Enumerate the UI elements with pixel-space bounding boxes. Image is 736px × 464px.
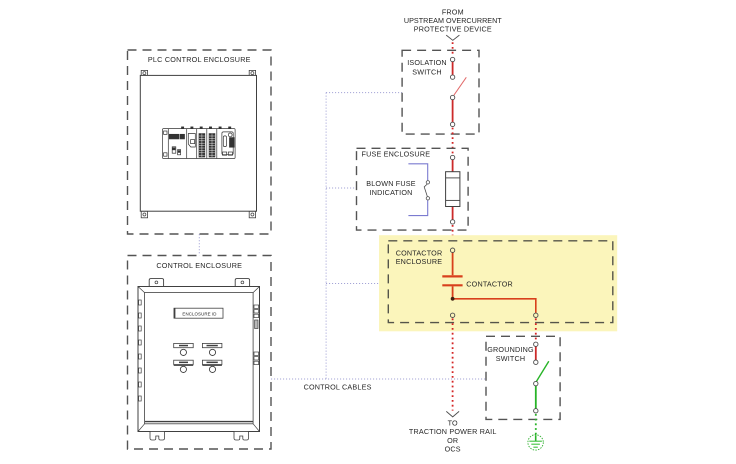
svg-text:CONTROL CABLES: CONTROL CABLES: [304, 382, 372, 391]
svg-text:BLOWN FUSE: BLOWN FUSE: [366, 179, 416, 188]
svg-text:TO: TO: [448, 418, 458, 427]
svg-text:PROTECTIVE DEVICE: PROTECTIVE DEVICE: [414, 25, 492, 34]
svg-text:SWITCH: SWITCH: [496, 354, 526, 363]
svg-text:CONTACTOR: CONTACTOR: [466, 279, 513, 288]
svg-text:TRACTION POWER RAIL: TRACTION POWER RAIL: [409, 427, 497, 436]
svg-text:PLC CONTROL ENCLOSURE: PLC CONTROL ENCLOSURE: [148, 55, 251, 64]
svg-text:ENCLOSURE ID: ENCLOSURE ID: [182, 311, 216, 316]
svg-text:SWITCH: SWITCH: [412, 67, 442, 76]
svg-text:UPSTREAM OVERCURRENT: UPSTREAM OVERCURRENT: [404, 16, 502, 25]
svg-text:FROM: FROM: [442, 7, 464, 16]
svg-text:OCS: OCS: [445, 445, 461, 454]
svg-text:CONTROL ENCLOSURE: CONTROL ENCLOSURE: [156, 261, 242, 270]
svg-text:FUSE ENCLOSURE: FUSE ENCLOSURE: [362, 150, 431, 159]
svg-text:ENCLOSURE: ENCLOSURE: [396, 257, 443, 266]
svg-text:INDICATION: INDICATION: [370, 188, 413, 197]
svg-text:ISOLATION: ISOLATION: [407, 58, 447, 67]
